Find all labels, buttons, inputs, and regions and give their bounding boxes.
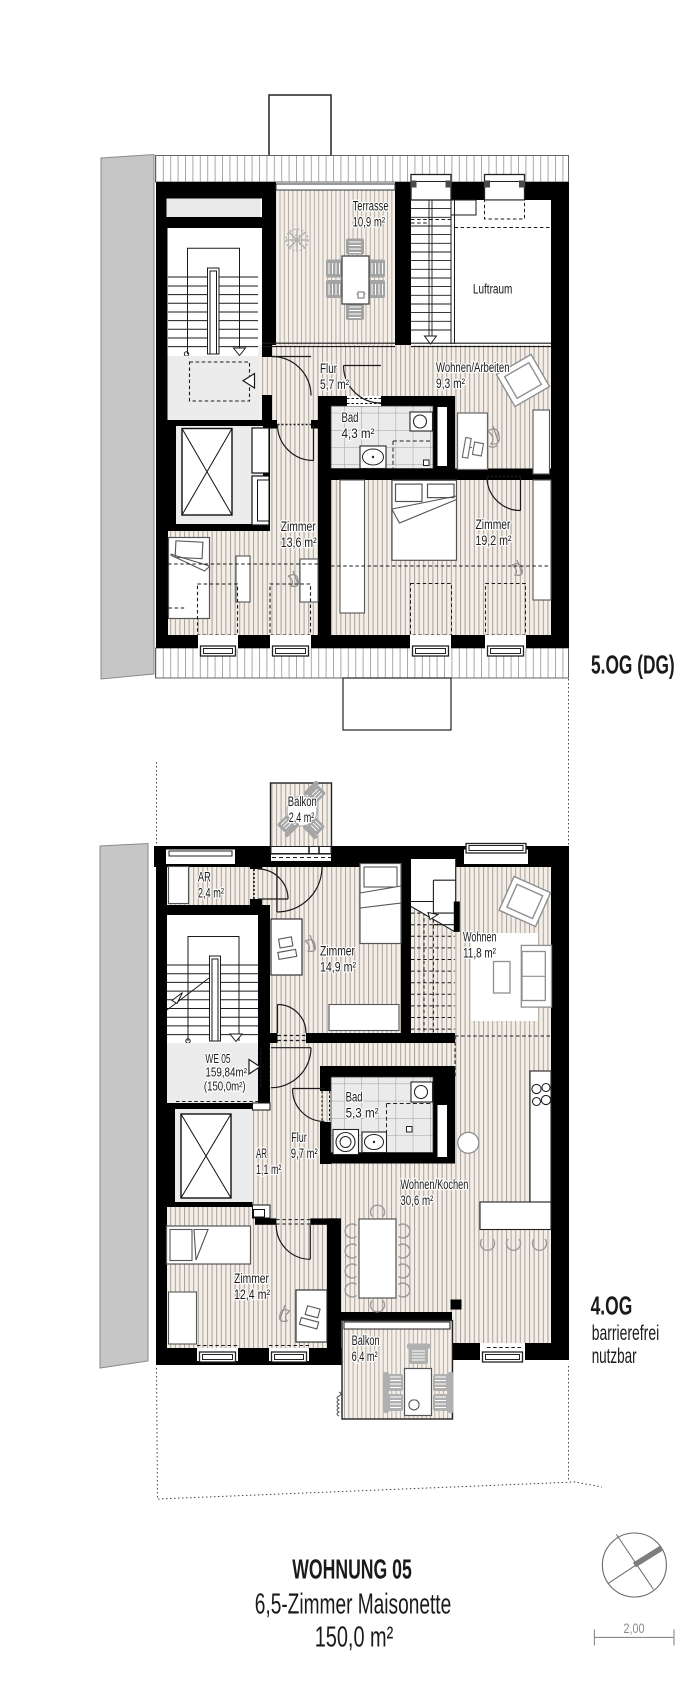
svg-text:Wohnen/Kochen: Wohnen/Kochen — [400, 1177, 468, 1192]
svg-text:Flur: Flur — [291, 1130, 307, 1145]
svg-text:150,0 m²: 150,0 m² — [315, 1621, 394, 1653]
svg-text:13,6 m²: 13,6 m² — [281, 535, 317, 550]
svg-text:11,8 m²: 11,8 m² — [463, 946, 496, 961]
svg-text:barrierefrei: barrierefrei — [592, 1321, 660, 1345]
svg-text:10,9 m²: 10,9 m² — [353, 215, 386, 230]
svg-text:Bad: Bad — [346, 1090, 363, 1105]
svg-text:2,4 m²: 2,4 m² — [198, 886, 224, 901]
svg-text:Luftraum: Luftraum — [473, 281, 513, 296]
svg-text:AR: AR — [198, 870, 211, 885]
svg-text:Balkon: Balkon — [352, 1333, 380, 1348]
svg-text:AR: AR — [256, 1146, 267, 1161]
svg-text:4.OG: 4.OG — [591, 1291, 633, 1321]
svg-text:5,3 m²: 5,3 m² — [346, 1106, 379, 1121]
svg-text:2,00: 2,00 — [624, 1621, 645, 1636]
svg-text:WOHNUNG 05: WOHNUNG 05 — [292, 1554, 412, 1585]
svg-text:nutzbar: nutzbar — [592, 1344, 637, 1368]
svg-text:Zimmer: Zimmer — [476, 517, 511, 532]
svg-text:30,6 m²: 30,6 m² — [400, 1193, 433, 1208]
svg-text:(150,0m²): (150,0m²) — [204, 1079, 246, 1094]
svg-text:Zimmer: Zimmer — [234, 1271, 269, 1286]
svg-text:Flur: Flur — [320, 361, 337, 376]
svg-text:Bad: Bad — [342, 410, 359, 425]
svg-text:Balkon: Balkon — [288, 794, 317, 809]
svg-text:9,3 m²: 9,3 m² — [436, 376, 465, 391]
svg-text:Wohnen: Wohnen — [463, 930, 497, 945]
svg-text:1,1 m²: 1,1 m² — [256, 1162, 282, 1177]
svg-text:12,4 m²: 12,4 m² — [234, 1287, 270, 1302]
svg-text:14,9 m²: 14,9 m² — [320, 960, 356, 975]
svg-text:Zimmer: Zimmer — [281, 519, 316, 534]
svg-text:4,3 m²: 4,3 m² — [342, 426, 375, 441]
svg-text:9,7 m²: 9,7 m² — [291, 1146, 318, 1161]
svg-text:5.OG (DG): 5.OG (DG) — [591, 649, 675, 679]
svg-text:159,84m²: 159,84m² — [205, 1065, 247, 1080]
svg-text:19,2 m²: 19,2 m² — [476, 533, 512, 548]
svg-text:Terrasse: Terrasse — [353, 199, 389, 214]
svg-text:2,4 m²: 2,4 m² — [289, 810, 315, 825]
svg-text:Wohnen/Arbeiten: Wohnen/Arbeiten — [436, 360, 510, 375]
svg-text:Zimmer: Zimmer — [320, 944, 355, 959]
svg-text:6,4 m²: 6,4 m² — [352, 1349, 378, 1364]
svg-text:5,7 m²: 5,7 m² — [320, 377, 349, 392]
svg-text:6,5-Zimmer Maisonette: 6,5-Zimmer Maisonette — [255, 1588, 452, 1620]
svg-text:WE 05: WE 05 — [205, 1051, 230, 1066]
